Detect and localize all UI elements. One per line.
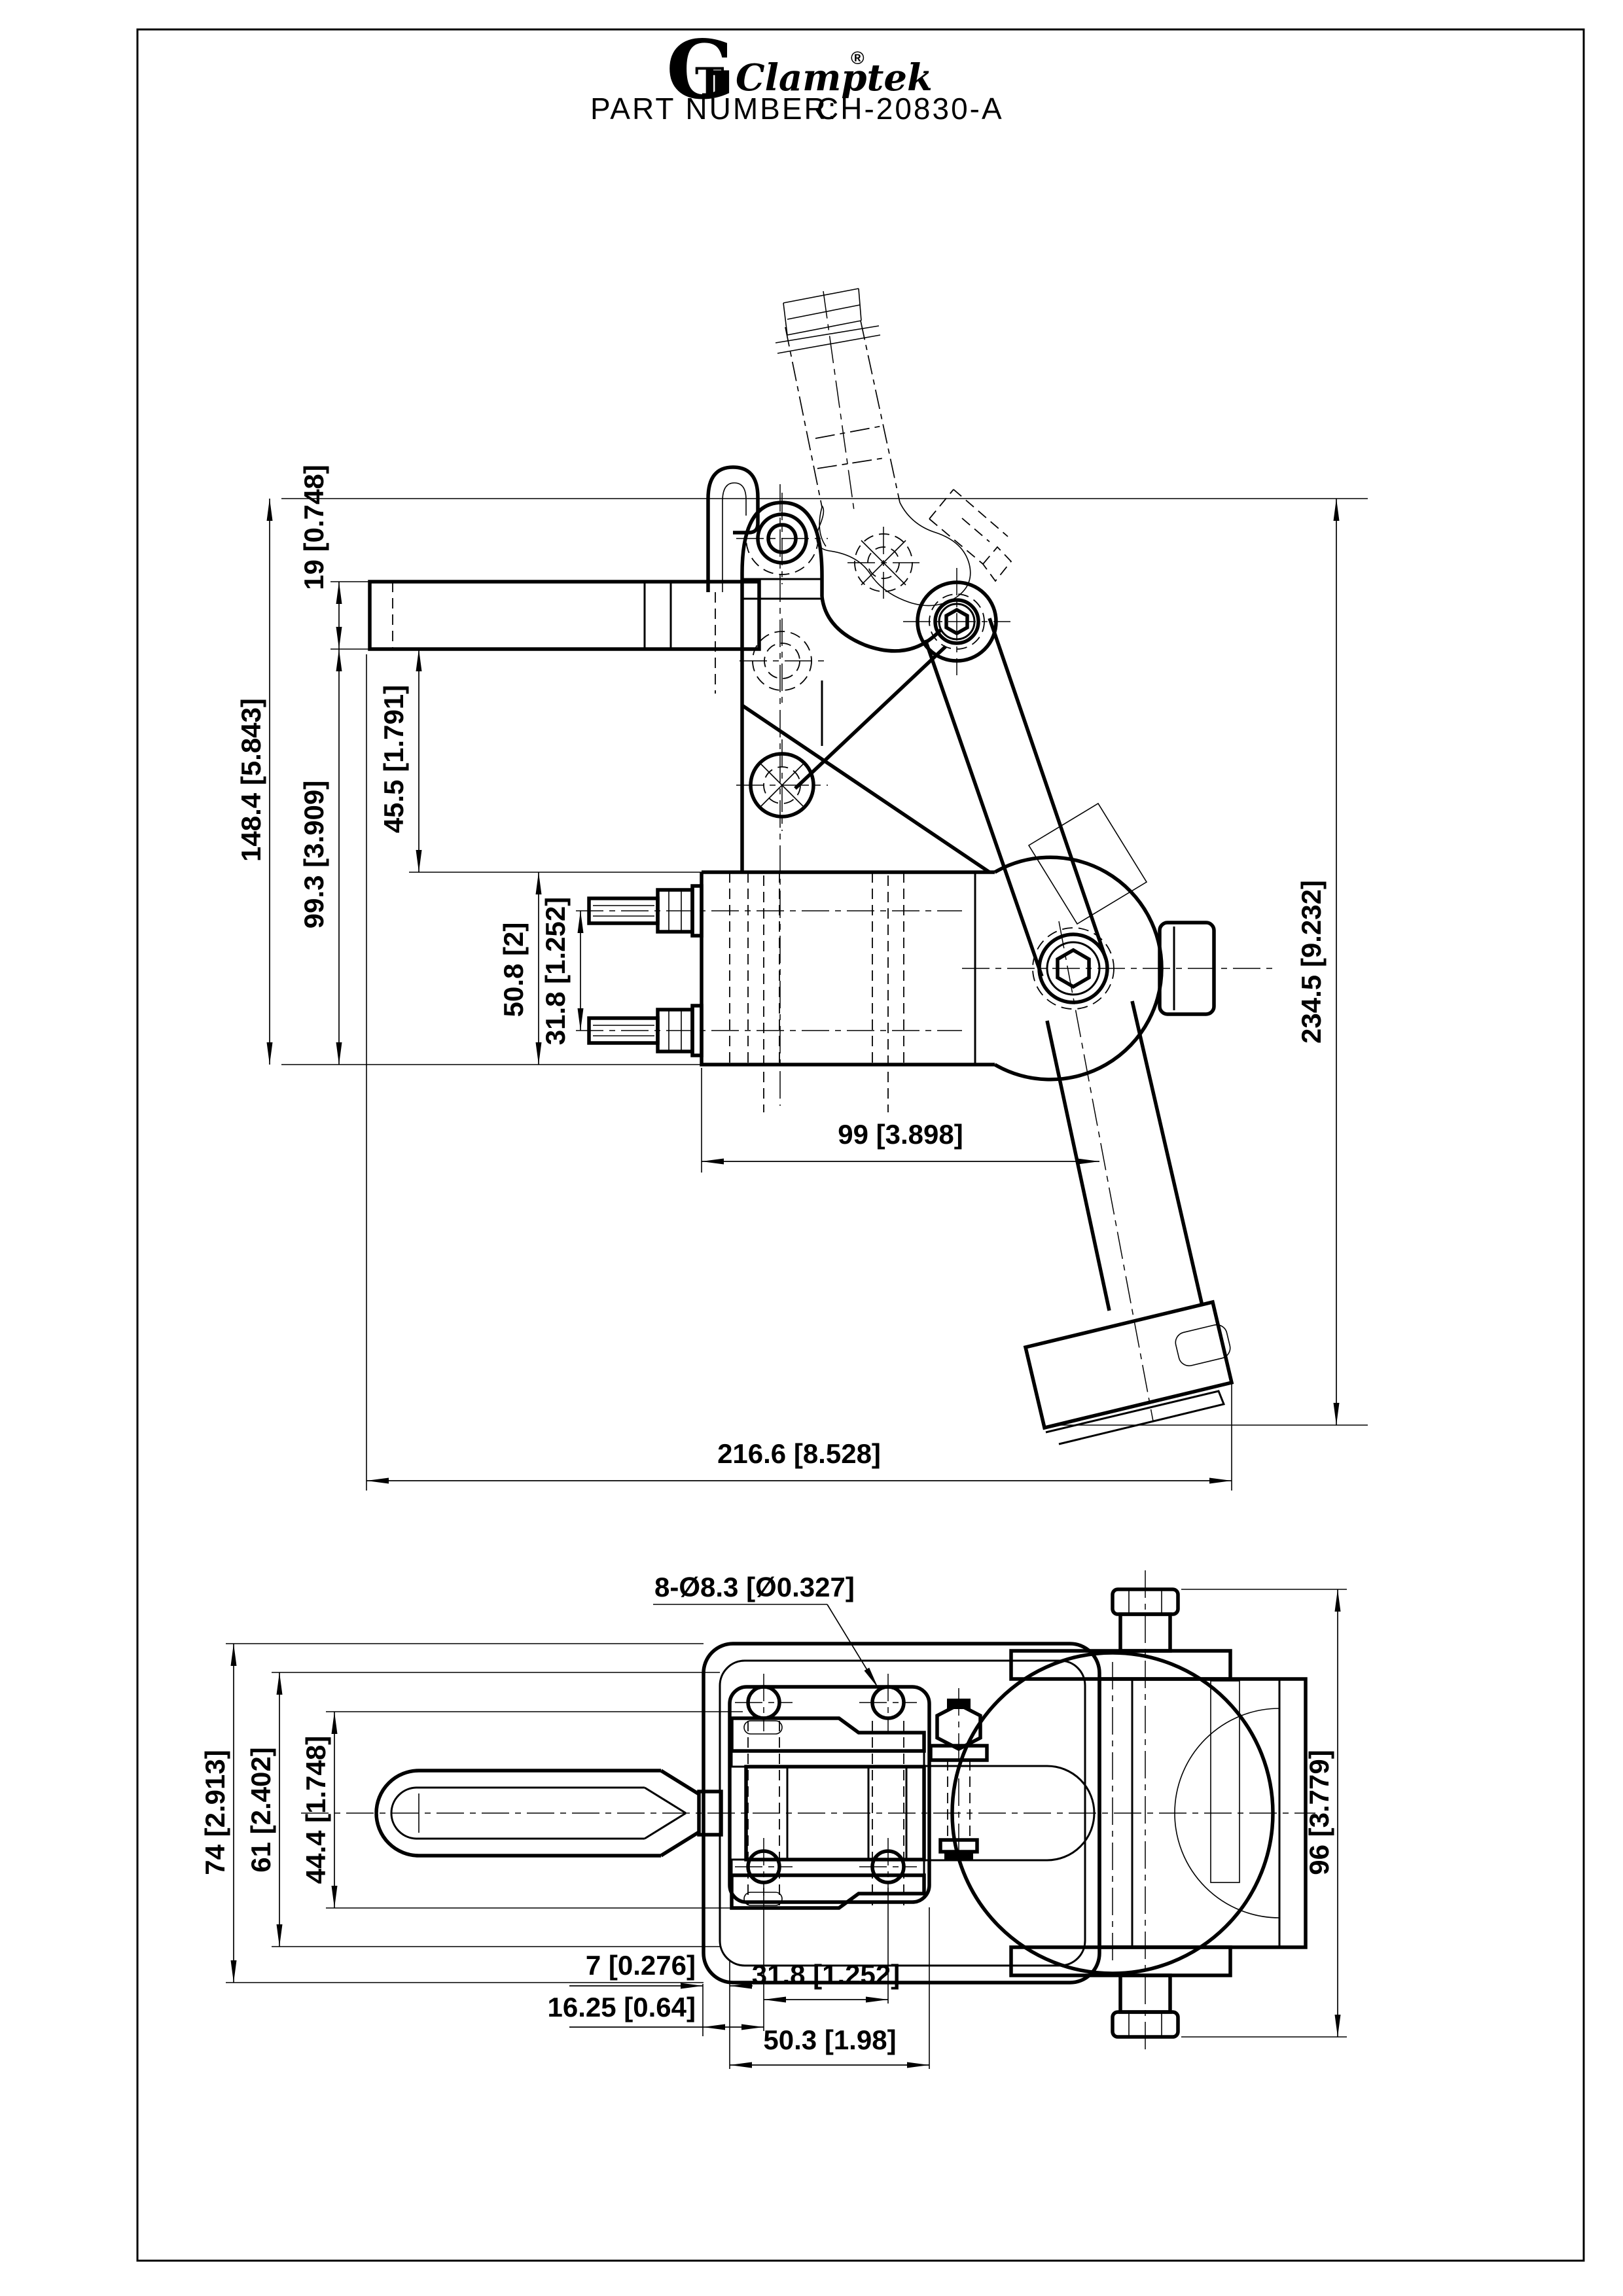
dim-overall-height-label: 148.4 [5.843]	[236, 698, 266, 862]
part-number-label: PART NUMBER:	[590, 92, 838, 126]
part-number-value: CH-20830-A	[817, 92, 1004, 126]
side-view: 148.4 [5.843] 19 [0.748] 99.3 [3.909] 45…	[236, 289, 1368, 1491]
link-pivot-bolt	[903, 568, 1010, 675]
dim-bolt-spacing: 31.8 [1.252]	[540, 897, 580, 1046]
dim-hole-span-label: 50.3 [1.98]	[763, 2024, 896, 2055]
base-pivot-bolt	[962, 928, 1276, 1009]
dim-base-height: 50.8 [2]	[498, 872, 539, 1065]
dim-base-to-pivot: 99 [3.898]	[702, 1068, 1099, 1173]
plan-clevis-bolt	[931, 1688, 987, 1866]
clamp-arm-bar	[370, 582, 759, 649]
dim-inner-width-label: 61 [2.402]	[245, 1747, 276, 1872]
dim-roller-width-label: 96 [3.779]	[1304, 1750, 1334, 1875]
plan-handle	[301, 1771, 1315, 1856]
logo-registered-icon: ®	[851, 48, 865, 68]
holes-callout-leader	[827, 1604, 878, 1688]
dim-arm-to-base-bottom-label: 99.3 [3.909]	[298, 781, 329, 929]
plan-mounting-holes	[735, 1674, 917, 1896]
dim-arm-thickness-label: 19 [0.748]	[298, 465, 329, 590]
phantom-handle-centerline	[823, 291, 854, 510]
dim-open-height-label: 234.5 [9.232]	[1296, 880, 1327, 1044]
dim-base-to-pivot-label: 99 [3.898]	[838, 1119, 963, 1150]
dim-slot-width: 44.4 [1.748]	[300, 1712, 743, 1908]
body-pivot-top	[736, 493, 828, 584]
dim-hole-spacing-label: 31.8 [1.252]	[752, 1959, 901, 1990]
drawing-page: G T Clamptek ® PART NUMBER: CH-20830-A	[0, 0, 1623, 2296]
dim-edge-to-hole-label: 16.25 [0.64]	[548, 1992, 696, 2022]
title-block: G T Clamptek ® PART NUMBER: CH-20830-A	[590, 23, 1004, 126]
body-pivot-middle	[740, 618, 825, 703]
phantom-pivot-wheel	[847, 527, 919, 599]
plan-view: 74 [2.913] 61 [2.402] 44.4 [1.748] 96 [3…	[200, 1570, 1347, 2069]
handle-centerline	[1059, 921, 1153, 1421]
dim-base-width-label: 74 [2.913]	[200, 1750, 230, 1875]
dim-overall-length-label: 216.6 [8.528]	[717, 1438, 881, 1469]
phantom-handle-up	[776, 289, 971, 606]
dim-arm-thickness: 19 [0.748]	[298, 465, 370, 649]
holes-callout: 8-Ø8.3 [Ø0.327]	[653, 1572, 878, 1688]
dim-slot-width-label: 44.4 [1.748]	[300, 1736, 331, 1884]
dim-bolt-spacing-label: 31.8 [1.252]	[540, 897, 571, 1046]
dim-overall-length: 216.6 [8.528]	[366, 654, 1232, 1491]
dim-arm-to-base-top: 45.5 [1.791]	[378, 649, 702, 872]
dim-base-height-label: 50.8 [2]	[498, 923, 529, 1017]
drawing-sheet: G T Clamptek ® PART NUMBER: CH-20830-A	[0, 0, 1623, 2296]
dim-arm-to-base-top-label: 45.5 [1.791]	[378, 685, 409, 834]
holes-callout-label: 8-Ø8.3 [Ø0.327]	[654, 1572, 855, 1602]
dim-edge-to-boss-label: 7 [0.276]	[586, 1950, 696, 1981]
dim-arm-to-base-bottom: 99.3 [3.909]	[298, 649, 339, 1065]
